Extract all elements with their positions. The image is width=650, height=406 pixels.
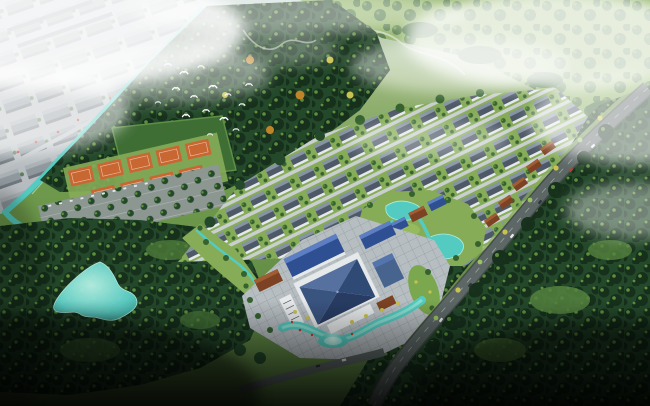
- rendering-stage: [0, 0, 650, 406]
- aerial-rendering: [0, 0, 650, 406]
